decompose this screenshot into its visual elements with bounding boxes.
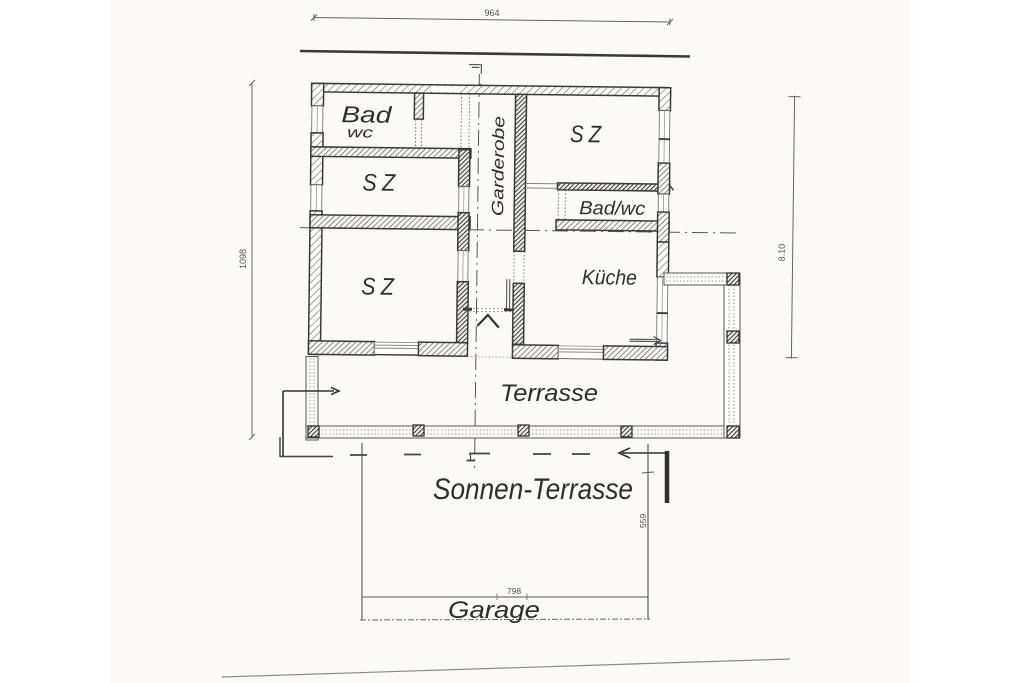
- svg-text:Sonnen-Terrasse: Sonnen-Terrasse: [433, 473, 633, 506]
- svg-text:wc: wc: [347, 124, 374, 141]
- svg-text:1098: 1098: [238, 249, 248, 269]
- svg-text:Garage: Garage: [448, 597, 540, 624]
- svg-text:798: 798: [507, 586, 521, 596]
- svg-text:SZ: SZ: [361, 273, 399, 300]
- svg-text:SZ: SZ: [362, 169, 400, 196]
- svg-text:Terrasse: Terrasse: [500, 380, 598, 407]
- svg-text:Küche: Küche: [582, 266, 637, 290]
- svg-text:559: 559: [638, 514, 648, 528]
- svg-text:964: 964: [484, 8, 499, 18]
- svg-text:SZ: SZ: [570, 121, 606, 148]
- svg-text:8.10: 8.10: [777, 244, 787, 262]
- svg-text:Garderobe: Garderobe: [489, 116, 508, 216]
- svg-text:Bad/wc: Bad/wc: [579, 198, 646, 220]
